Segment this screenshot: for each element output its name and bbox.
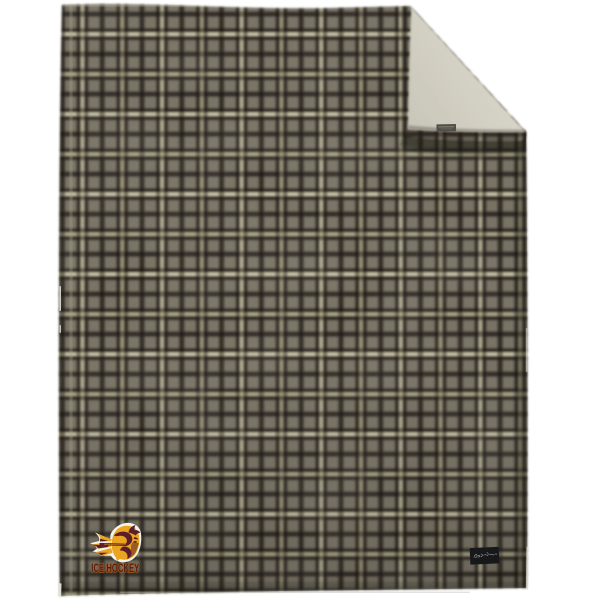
svg-text:ICE HOCKEY: ICE HOCKEY bbox=[91, 562, 139, 575]
